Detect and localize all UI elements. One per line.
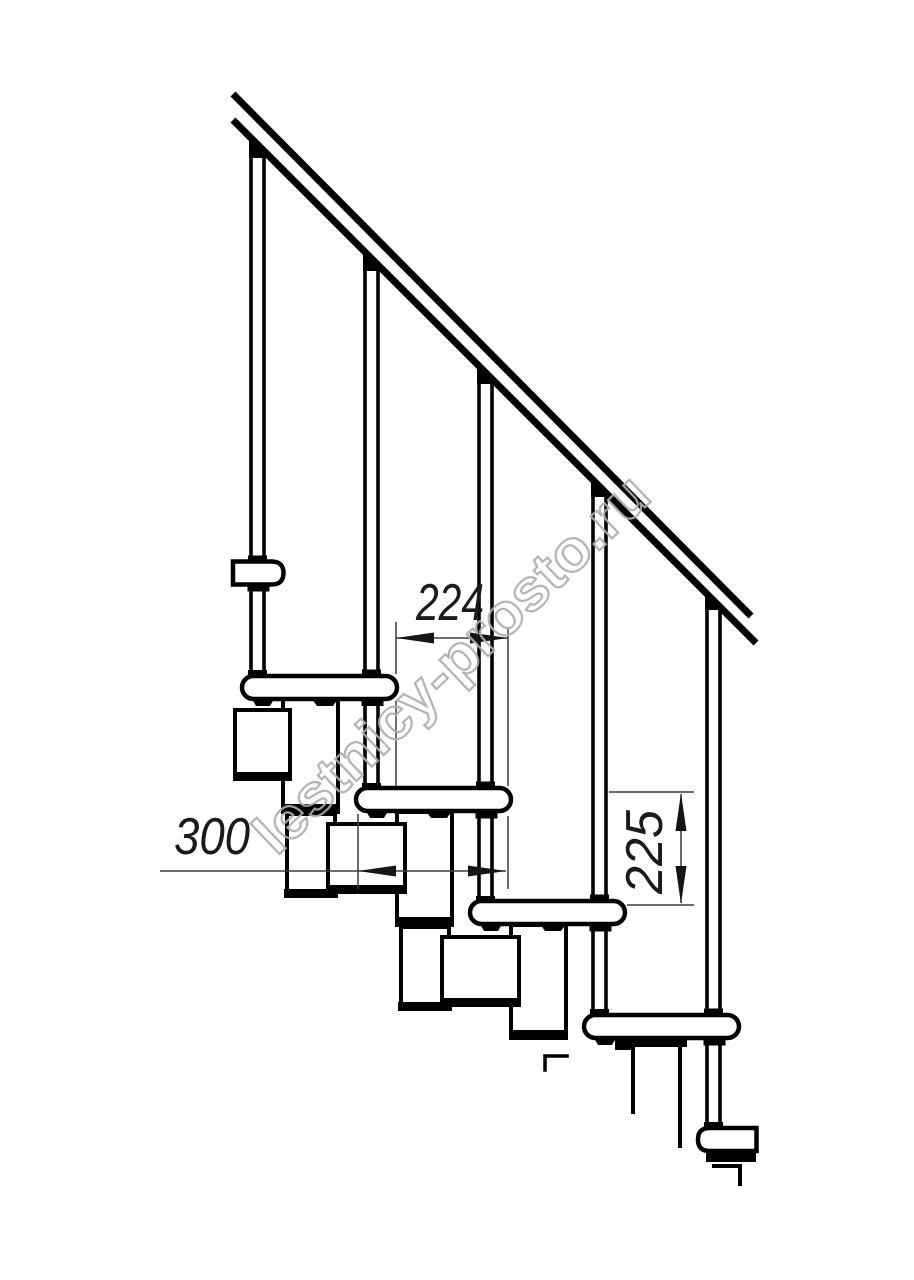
dimension-step-rise: 225: [609, 792, 694, 905]
handrail-connector: [705, 592, 722, 610]
stringer-box: [235, 710, 290, 778]
tread: [470, 901, 625, 924]
drawing-break-line: [712, 1166, 740, 1186]
dimension-label-step-rise: 225: [616, 809, 674, 895]
staircase-technical-drawing: 224 300 225 lestnicy-prosto.ru: [0, 0, 914, 1280]
dimension-label-tread-depth: 300: [174, 808, 250, 866]
baluster: [251, 155, 264, 677]
tread-lower-cut: [698, 1128, 757, 1151]
stringer-box: [442, 937, 519, 1004]
baluster: [707, 607, 720, 1129]
handrail-bottom-edge: [233, 120, 756, 643]
tread-upper-cut: [233, 562, 284, 585]
tread: [584, 1015, 739, 1038]
staircase-drawing-page: 224 300 225 lestnicy-prosto.ru: [0, 0, 914, 1280]
stringer-box: [328, 824, 405, 891]
stringer-sleeve-cut: [545, 1056, 567, 1070]
handrail: [233, 94, 756, 643]
stringer-box-cut: [617, 1048, 633, 1112]
tread: [356, 788, 511, 811]
